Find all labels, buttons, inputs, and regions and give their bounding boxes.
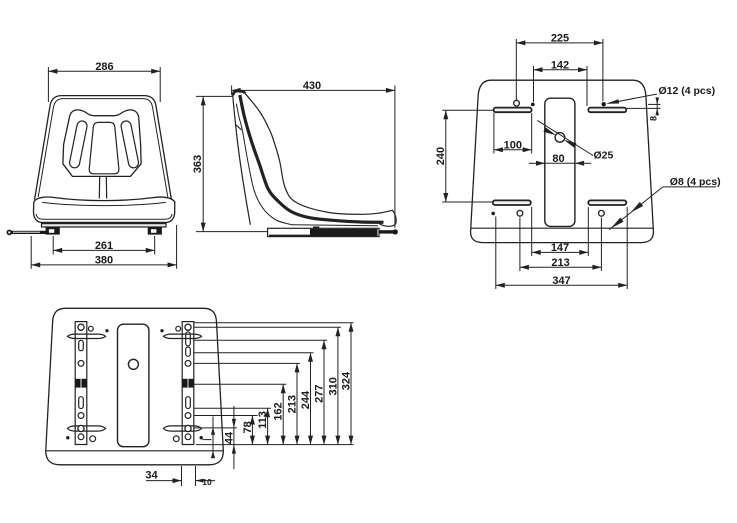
svg-text:100: 100 <box>504 139 522 151</box>
svg-text:Ø8 (4 pcs): Ø8 (4 pcs) <box>670 176 721 188</box>
svg-text:78: 78 <box>242 421 254 433</box>
svg-text:213: 213 <box>287 395 299 413</box>
svg-text:347: 347 <box>552 275 570 287</box>
svg-text:147: 147 <box>551 242 569 254</box>
svg-text:324: 324 <box>341 371 353 390</box>
svg-text:Ø25: Ø25 <box>594 149 614 161</box>
svg-text:113: 113 <box>257 411 269 429</box>
svg-text:244: 244 <box>300 390 312 409</box>
svg-text:240: 240 <box>435 147 447 165</box>
svg-text:Ø12 (4 pcs): Ø12 (4 pcs) <box>659 85 716 97</box>
svg-text:430: 430 <box>303 80 321 92</box>
svg-text:10: 10 <box>202 477 212 487</box>
svg-text:277: 277 <box>314 385 326 403</box>
svg-text:34: 34 <box>145 470 158 482</box>
svg-text:44: 44 <box>223 431 235 444</box>
svg-text:142: 142 <box>551 59 569 71</box>
svg-text:162: 162 <box>273 402 285 420</box>
svg-text:8: 8 <box>648 116 658 121</box>
svg-text:286: 286 <box>95 61 113 73</box>
svg-text:213: 213 <box>551 257 569 269</box>
svg-text:225: 225 <box>551 33 569 45</box>
svg-text:363: 363 <box>192 155 204 173</box>
svg-text:261: 261 <box>95 240 113 252</box>
svg-text:80: 80 <box>552 153 564 165</box>
svg-text:310: 310 <box>327 377 339 395</box>
svg-text:380: 380 <box>95 255 113 267</box>
